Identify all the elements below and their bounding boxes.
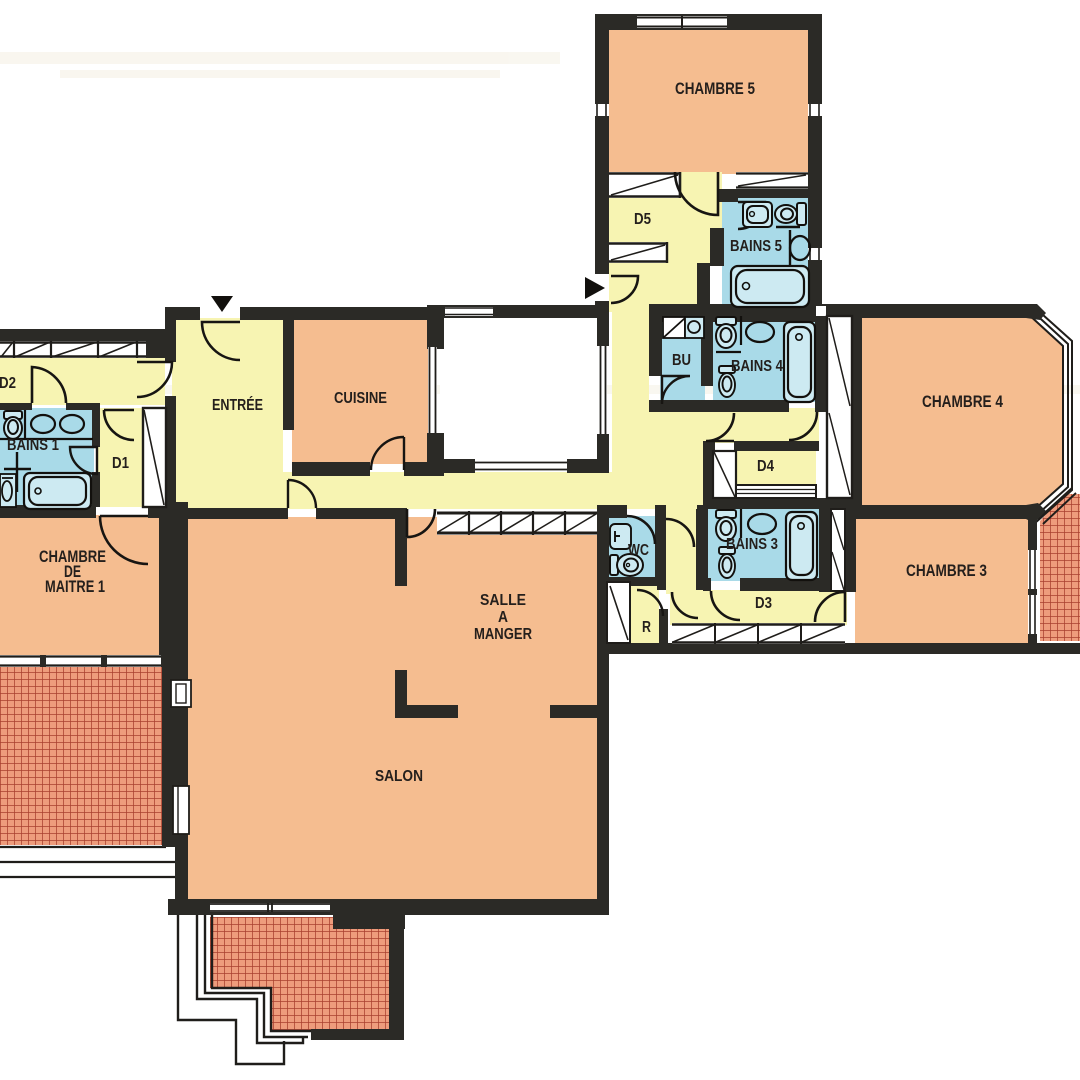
svg-text:D1: D1 (112, 455, 129, 472)
svg-text:D2: D2 (0, 375, 16, 392)
svg-text:ENTRÉE: ENTRÉE (212, 395, 263, 414)
svg-text:WC: WC (628, 542, 649, 559)
svg-text:D4: D4 (757, 458, 774, 475)
svg-text:MAITRE 1: MAITRE 1 (45, 578, 105, 596)
svg-text:BAINS 3: BAINS 3 (726, 536, 778, 553)
svg-text:BAINS 5: BAINS 5 (730, 238, 782, 255)
svg-text:SALLE: SALLE (480, 592, 526, 609)
svg-text:A: A (498, 609, 508, 626)
svg-text:CHAMBRE 5: CHAMBRE 5 (675, 80, 755, 98)
svg-text:D5: D5 (634, 211, 651, 228)
svg-text:CUISINE: CUISINE (334, 390, 387, 407)
svg-text:D3: D3 (755, 595, 772, 612)
svg-text:SALON: SALON (375, 768, 423, 785)
svg-text:BAINS 4: BAINS 4 (731, 358, 783, 375)
svg-text:CHAMBRE 4: CHAMBRE 4 (922, 393, 1004, 411)
svg-text:BU: BU (672, 352, 691, 369)
svg-text:CHAMBRE 3: CHAMBRE 3 (906, 562, 987, 580)
svg-text:BAINS 1: BAINS 1 (7, 437, 59, 454)
svg-text:R: R (642, 619, 651, 636)
svg-text:MANGER: MANGER (474, 626, 532, 643)
